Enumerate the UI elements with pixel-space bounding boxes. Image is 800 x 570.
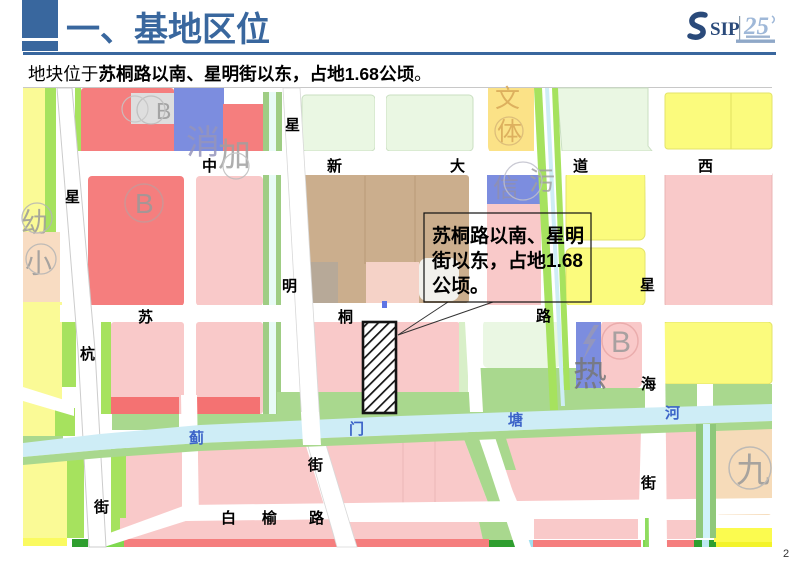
svg-text:B: B [135,188,154,219]
svg-text:西: 西 [698,158,713,175]
svg-text:中: 中 [202,157,217,175]
svg-text:桐: 桐 [338,308,353,326]
svg-text:街以东，占地1.68: 街以东，占地1.68 [431,249,583,272]
svg-text:小: 小 [25,249,52,279]
svg-text:榆: 榆 [262,509,278,527]
svg-text:星: 星 [285,117,300,134]
svg-text:路: 路 [536,307,552,325]
svg-text:星: 星 [640,277,655,294]
svg-text:文: 文 [495,85,520,113]
svg-text:街: 街 [307,456,323,474]
svg-text:杭: 杭 [80,345,95,363]
svg-text:新: 新 [327,157,342,175]
svg-text:B: B [611,326,631,359]
svg-text:幼: 幼 [21,208,48,238]
svg-text:苏: 苏 [138,308,153,326]
svg-text:蓟: 蓟 [188,429,204,447]
svg-text:道: 道 [573,157,588,175]
svg-text:白: 白 [221,509,236,527]
svg-text:热: 热 [573,356,607,394]
svg-text:B: B [156,98,171,124]
svg-text:门: 门 [349,420,364,438]
svg-text:消: 消 [186,124,220,162]
svg-text:星: 星 [65,189,80,206]
svg-text:公顷。: 公顷。 [432,275,489,297]
svg-text:九: 九 [736,452,770,490]
svg-text:塘: 塘 [508,411,523,429]
svg-text:街: 街 [640,474,656,492]
svg-text:街: 街 [93,498,109,516]
svg-text:海: 海 [641,375,656,393]
svg-text:苏桐路以南、星明: 苏桐路以南、星明 [432,224,584,247]
svg-text:明: 明 [282,278,297,295]
svg-text:大: 大 [450,157,465,175]
svg-text:河: 河 [665,404,680,422]
svg-text:路: 路 [309,509,325,527]
